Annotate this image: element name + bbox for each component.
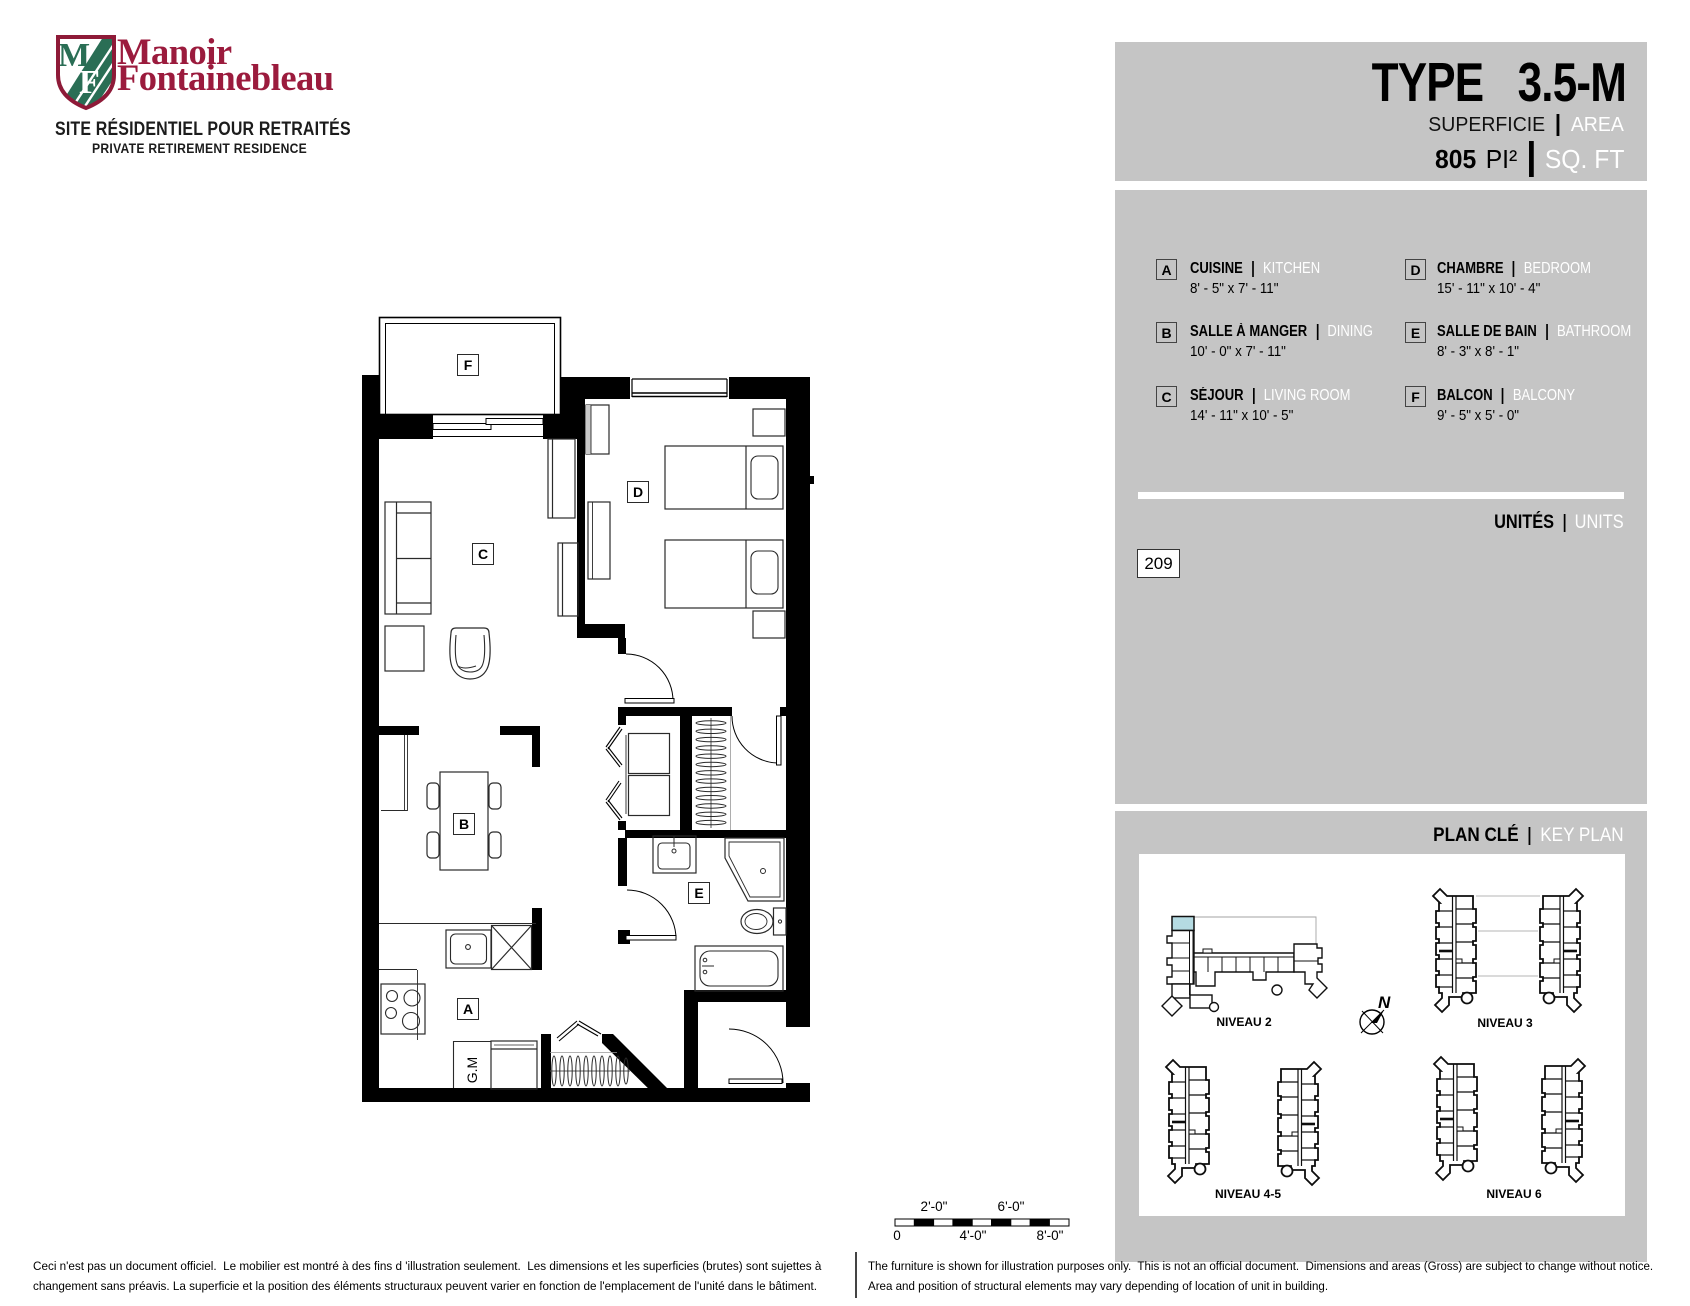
svg-text:F: F — [79, 64, 100, 101]
